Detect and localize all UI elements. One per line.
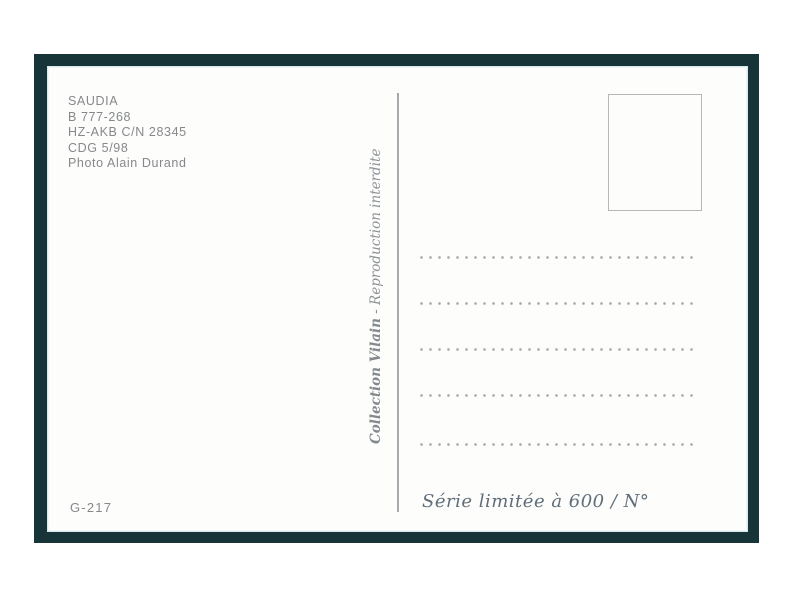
catalog-number: G-217 — [70, 500, 112, 515]
limited-series-note: Série limitée à 600 / N° — [422, 491, 649, 512]
stamp-box — [608, 94, 702, 211]
aircraft-type: B 777-268 — [68, 110, 187, 126]
address-dotted-line — [420, 256, 696, 259]
credit-separator: - — [368, 305, 384, 318]
airline-name: SAUDIA — [68, 94, 187, 110]
photo-caption-block: SAUDIA B 777-268 HZ-AKB C/N 28345 CDG 5/… — [68, 94, 187, 172]
reproduction-notice: Reproduction interdite — [368, 149, 384, 305]
registration-serial: HZ-AKB C/N 28345 — [68, 125, 187, 141]
postcard-scan: SAUDIA B 777-268 HZ-AKB C/N 28345 CDG 5/… — [0, 0, 800, 600]
location-date: CDG 5/98 — [68, 141, 187, 157]
postcard-back: SAUDIA B 777-268 HZ-AKB C/N 28345 CDG 5/… — [47, 66, 748, 532]
postcard-frame: SAUDIA B 777-268 HZ-AKB C/N 28345 CDG 5/… — [34, 54, 759, 543]
address-dotted-line — [420, 443, 696, 446]
address-dotted-line — [420, 394, 696, 397]
address-lines-area — [420, 256, 696, 448]
address-dotted-line — [420, 348, 696, 351]
collection-credit: Collection Vilain - Reproduction interdi… — [368, 164, 388, 444]
collection-name: Collection Vilain — [368, 318, 384, 444]
photographer-credit: Photo Alain Durand — [68, 156, 187, 172]
center-divider-line — [397, 93, 399, 512]
address-dotted-line — [420, 302, 696, 305]
